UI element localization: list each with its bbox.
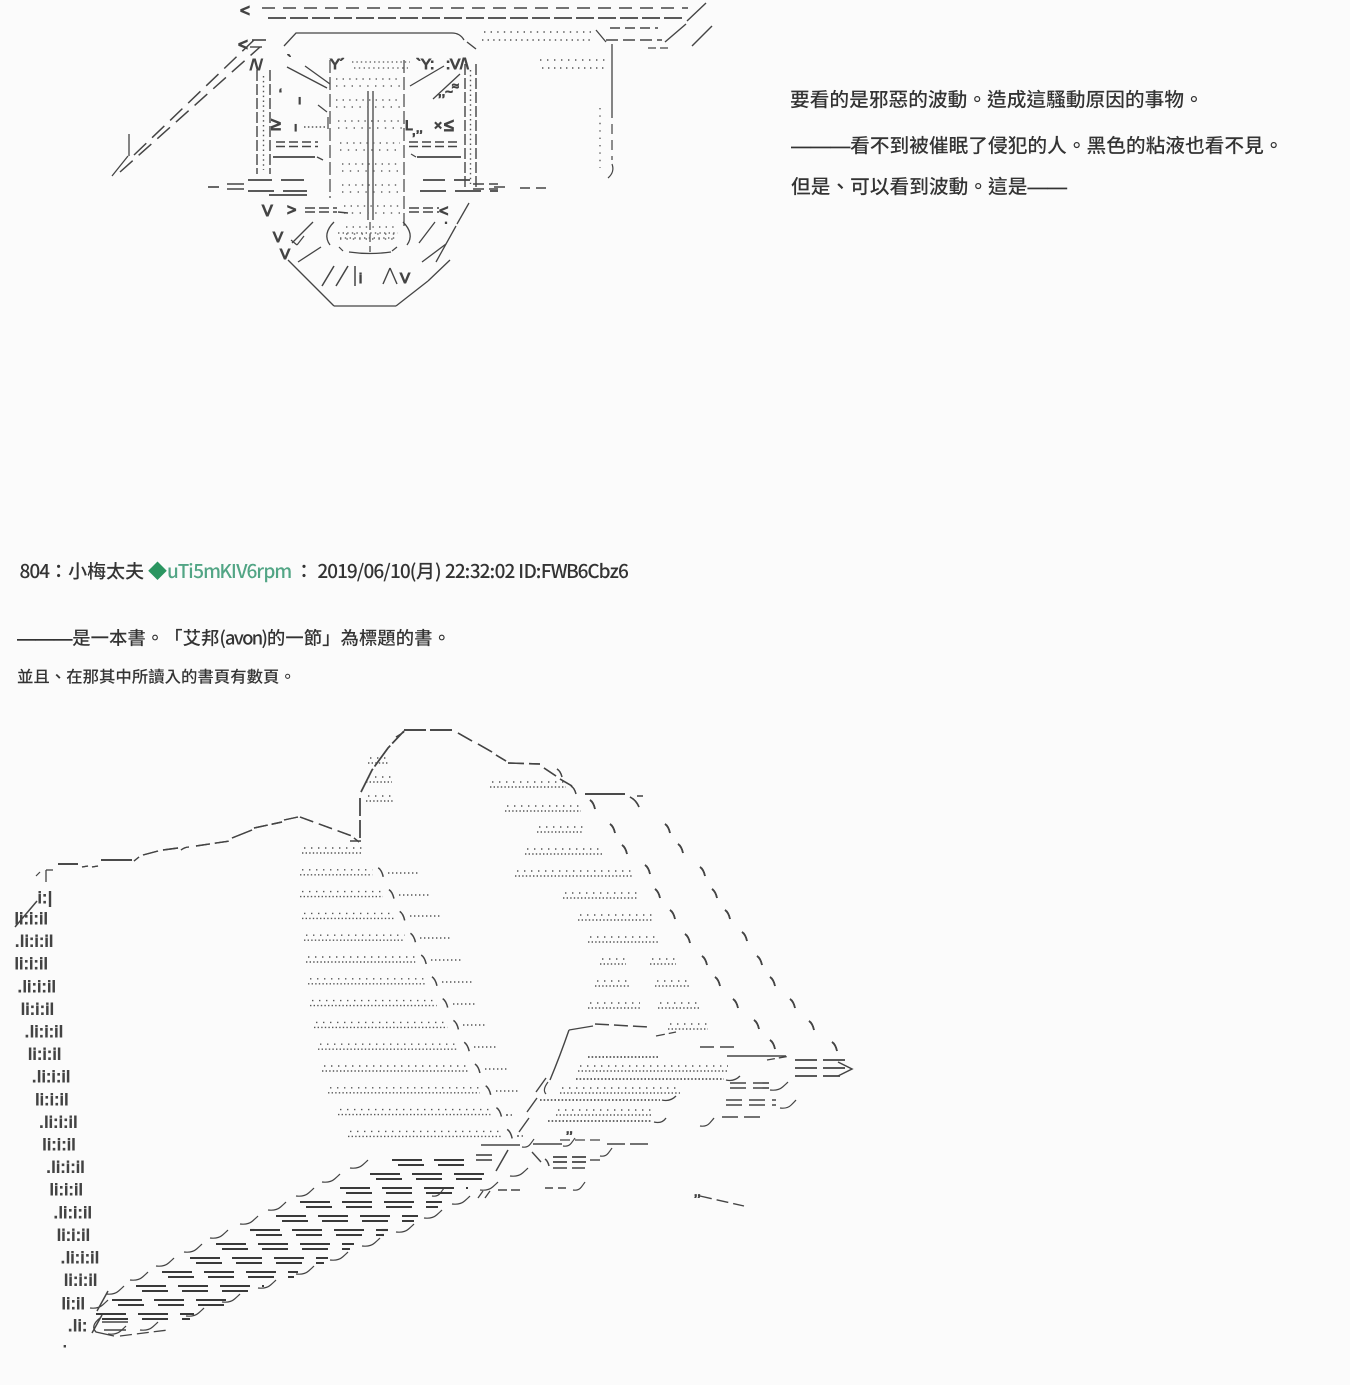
svg-text:li:i:il: li:i:il [28, 1047, 62, 1064]
svg-text:,,: ,, [416, 121, 423, 135]
svg-text:ı: ı [294, 120, 297, 134]
svg-text:,,: ,, [566, 1122, 573, 1136]
svg-text:V: V [273, 229, 283, 246]
svg-text::V/\: :V/\ [446, 56, 469, 73]
svg-text:≈: ≈ [452, 79, 459, 93]
svg-text:Y´: Y´ [330, 56, 345, 73]
svg-text:V: V [400, 270, 410, 287]
svg-text:li:i:il: li:i:il [15, 911, 49, 928]
svg-text:li:il: li:il [62, 1296, 86, 1313]
svg-text:×: × [434, 117, 442, 133]
svg-text:li:i:il: li:i:il [21, 1001, 55, 1018]
svg-text:.li:i:il: .li:i:il [39, 1114, 78, 1131]
svg-text:.li:i:il: .li:i:il [61, 1250, 100, 1267]
svg-text:i:|: i:| [38, 890, 53, 907]
svg-text:.li:i:il: .li:i:il [15, 934, 54, 951]
svg-text:li:i:il: li:i:il [43, 1137, 77, 1154]
svg-text:.: . [63, 1335, 67, 1350]
svg-text:<: < [240, 1, 250, 20]
svg-text:≥: ≥ [271, 114, 281, 134]
svg-text:ı: ı [298, 93, 301, 107]
svg-text:li:i:il: li:i:il [64, 1273, 98, 1290]
svg-text:li:i:il: li:i:il [50, 1182, 84, 1199]
svg-text:≤: ≤ [444, 115, 454, 135]
svg-text:.li:: .li: [68, 1318, 88, 1335]
svg-text:`Y:: `Y: [416, 56, 434, 73]
svg-text:>: > [287, 202, 296, 219]
svg-text:.li:i:il: .li:i:il [46, 1160, 85, 1177]
svg-text:li:i:il: li:i:il [15, 956, 49, 973]
svg-text:i: i [359, 270, 362, 286]
svg-text:,,~: ,,~ [438, 84, 453, 99]
svg-text:`: ` [287, 52, 291, 67]
svg-text:·: · [444, 215, 448, 229]
svg-text:.li:i:il: .li:i:il [54, 1205, 93, 1222]
svg-text:,,: ,, [694, 1185, 701, 1199]
svg-text:L: L [405, 117, 413, 133]
svg-text:li:i:il: li:i:il [36, 1092, 70, 1109]
svg-text:‘: ‘ [279, 86, 282, 101]
svg-text:V: V [262, 203, 273, 220]
svg-text:.li:i:il: .li:i:il [18, 979, 57, 996]
svg-text:.li:i:il: .li:i:il [25, 1024, 64, 1041]
svg-text:li:i:il: li:i:il [57, 1227, 91, 1244]
svg-text:.li:i:il: .li:i:il [32, 1069, 71, 1086]
